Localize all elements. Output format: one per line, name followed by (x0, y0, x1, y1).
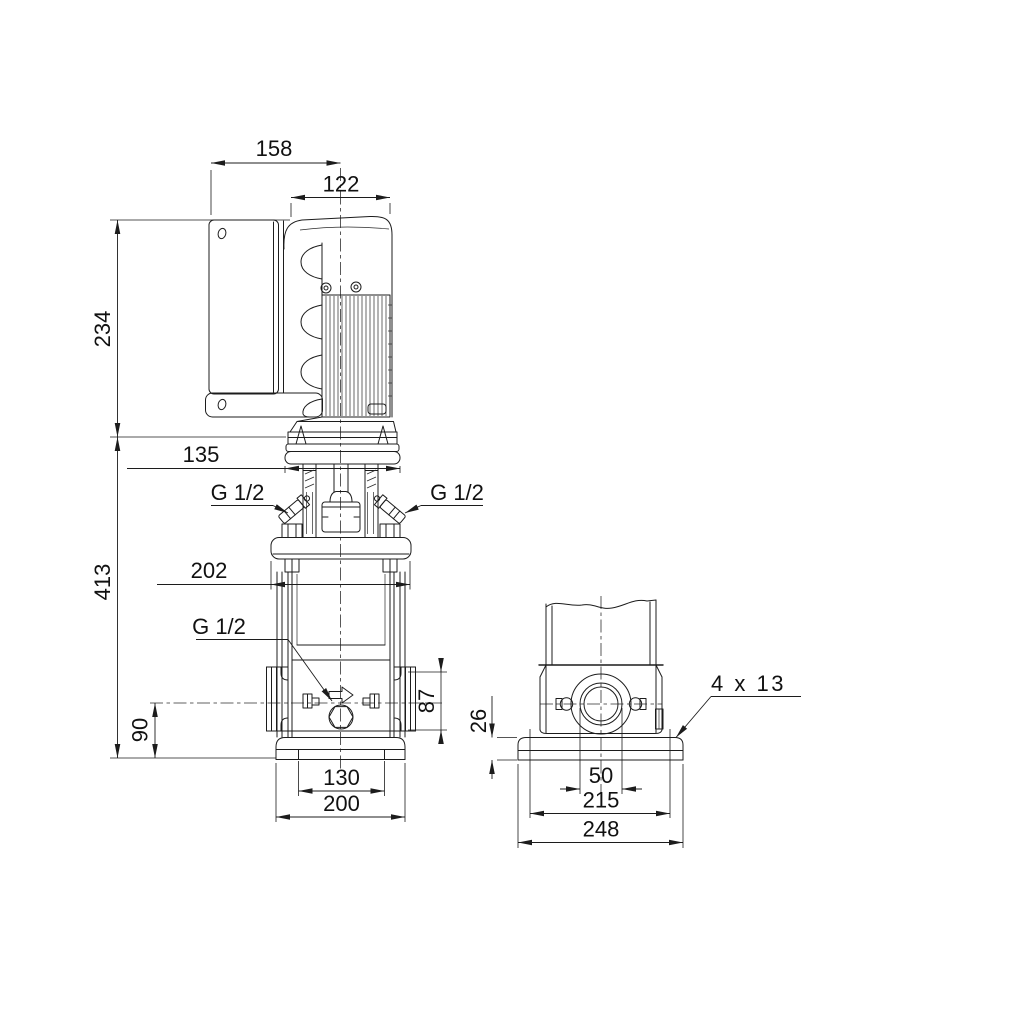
pump-chamber-stack (267, 572, 416, 737)
dim-90: 90 (128, 703, 156, 758)
terminal-box-lip (206, 393, 323, 417)
cooling-fin-lobe (301, 245, 322, 279)
vent-port-right-label: G 1/2 (430, 480, 484, 505)
vent-plug-right (371, 492, 407, 525)
flange-rib-left (296, 426, 306, 444)
mounting-plate (285, 452, 400, 465)
side-view: 26 50 215 248 4 x 13 (466, 596, 801, 848)
front-centerlines (150, 168, 442, 772)
dim-202-label: 202 (191, 558, 228, 583)
dim-202: 202 (157, 558, 410, 590)
dim-215: 215 (530, 788, 670, 814)
dim-248-label: 248 (583, 817, 620, 842)
fin-lines (326, 296, 386, 416)
flow-direction-arrow (329, 687, 353, 703)
box-screw-hole-bottom (217, 398, 227, 410)
vent-plug-left (277, 492, 313, 525)
dim-234: 234 (90, 220, 290, 437)
motor-body (284, 216, 392, 417)
front-dimensions: 158 122 234 413 (90, 136, 484, 822)
drain-port-label: G 1/2 (192, 614, 246, 639)
pump-dimensional-drawing: 158 122 234 413 (0, 0, 1024, 1024)
drain-plug (329, 705, 353, 729)
dim-158: 158 (211, 136, 341, 215)
head-flange (271, 538, 411, 560)
dim-50-label: 50 (589, 763, 613, 788)
bolt-holes-label: 4 x 13 (711, 671, 786, 696)
dim-87-label: 87 (414, 689, 439, 713)
cooling-fin-lobe (301, 355, 322, 389)
terminal-box-outline (209, 220, 279, 394)
front-view: 158 122 234 413 (90, 136, 484, 822)
label-drain-port: G 1/2 (192, 614, 332, 701)
dim-158-label: 158 (256, 136, 293, 161)
dim-215-label: 215 (583, 788, 620, 813)
box-screw-hole-top (217, 227, 227, 239)
dim-200-label: 200 (323, 791, 360, 816)
flange-rib-right (378, 426, 388, 444)
motor-adapter-flange (285, 417, 400, 464)
dim-90-label: 90 (128, 718, 153, 742)
label-vent-port-left: G 1/2 (211, 480, 288, 513)
dim-122-label: 122 (323, 172, 360, 197)
flange-rim (286, 444, 399, 452)
head-bolt-right (380, 524, 400, 538)
cooling-fin-lobe (303, 399, 322, 417)
motor-screw-right (351, 282, 361, 292)
cooling-fin-lobe (301, 305, 322, 339)
technical-drawing-page: 158 122 234 413 (0, 0, 1024, 1024)
fin-block (322, 295, 390, 417)
drain-plug-hex (329, 707, 353, 728)
dim-26-label: 26 (466, 709, 491, 733)
cable-entry (368, 404, 386, 414)
pump-head (271, 464, 411, 572)
label-bolt-holes: 4 x 13 (676, 671, 801, 738)
dim-135-label: 135 (183, 442, 220, 467)
label-vent-port-right: G 1/2 (405, 480, 484, 513)
dim-135: 135 (127, 442, 400, 473)
vent-port-left-label: G 1/2 (211, 480, 265, 505)
motor-terminal-box (206, 220, 323, 417)
dim-130-label: 130 (323, 765, 360, 790)
dim-234-label: 234 (90, 311, 115, 348)
head-bolt-left (282, 524, 302, 538)
dim-26: 26 (466, 696, 517, 779)
shaft-dome (330, 492, 352, 503)
dim-413-label: 413 (90, 564, 115, 601)
